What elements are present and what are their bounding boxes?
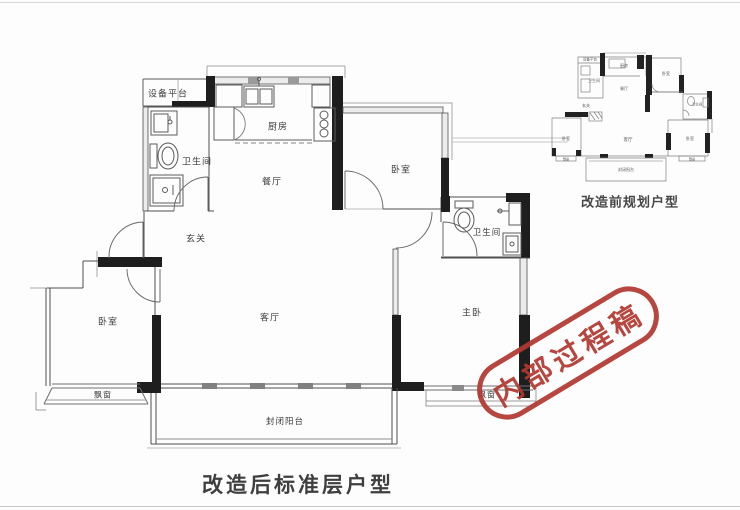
room-label-equipment-platform: 设备平台 [148,87,188,100]
wall-black-kitchen-left [206,76,215,107]
bedroom-top-windows [343,107,448,158]
kitchen-top-window [214,77,330,84]
small-room-label-bay-window-left: 飘窗 [563,157,569,162]
small-room-label-bay-window-right: 飘窗 [689,157,695,162]
stove-icon [314,108,335,141]
small-room-label-bathroom-right: 卫生间 [692,103,703,108]
fridge-icon [214,107,245,140]
wall-black-kitchen-bedroom [332,76,343,210]
small-room-label-bathroom-left: 卫生间 [588,78,600,84]
wall-black-bedroomleft-right [152,315,161,383]
small-room-label-equipment-platform: 设备平台 [583,58,597,63]
small-room-label-bedroom-left: 卧室 [562,136,570,142]
room-label-living: 客厅 [260,311,280,324]
vanity-icon-right [503,233,521,255]
room-label-bathroom-right: 卫生间 [473,226,502,238]
room-label-master-bedroom: 主卧 [462,306,482,319]
bedroom-left-walls [46,212,155,386]
sink-icon [151,111,177,135]
wall-black-bathright-corner [441,196,450,212]
room-label-bay-window-left: 飘窗 [94,390,112,401]
small-room-label-bedroom-right: 卧室 [686,136,694,142]
wall-black-master-left [392,315,401,390]
room-label-bedroom-left: 卧室 [98,315,118,328]
toilet-icon-right [454,201,474,232]
small-room-label-kitchen: 厨房 [620,63,628,69]
small-room-label-living: 客厅 [624,137,633,143]
wall-black-bedroomleft-top [98,257,162,267]
small-plan [552,53,712,181]
bay-window-left-frame [36,384,148,410]
kitchen-fixtures [214,78,335,144]
wall-black-platform [172,101,206,107]
entry-door [109,222,143,258]
bathroom-left-fixtures [150,111,183,206]
floorplan-drawing [0,0,740,510]
room-label-kitchen: 厨房 [268,120,288,133]
small-room-label-balcony: 封闭阳台 [618,167,634,173]
small-room-label-dining: 餐厅 [620,86,628,92]
small-plan-caption: 改造前规划户型 [581,192,679,211]
master-door [396,212,432,248]
room-label-bedroom-top: 卧室 [391,163,411,176]
toilet-icon [150,143,178,169]
sink-icon-right [497,203,521,225]
wall-black-bedroomleft-corner [137,382,161,393]
room-label-entry: 玄关 [186,232,206,245]
neighbor-boundary-line [451,138,568,142]
small-room-label-bedroom-top: 卧室 [662,71,670,77]
small-room-label-entry: 玄关 [582,103,590,109]
wall-black-bathright-side [521,193,530,258]
room-label-balcony: 封闭阳台 [266,415,304,427]
bedroom-top-door [345,171,383,209]
vanity-icon [150,175,183,206]
room-label-dining: 餐厅 [262,175,282,188]
living-window [160,383,392,389]
floorplan-screenshot: 设备平台 卫生间 厨房 餐厅 玄关 卧室 卫生间 客厅 主卧 卧室 飘窗 飘窗 … [0,0,740,510]
main-plan-caption: 改造后标准层户型 [202,469,394,499]
room-label-bathroom-left: 卫生间 [182,155,212,168]
